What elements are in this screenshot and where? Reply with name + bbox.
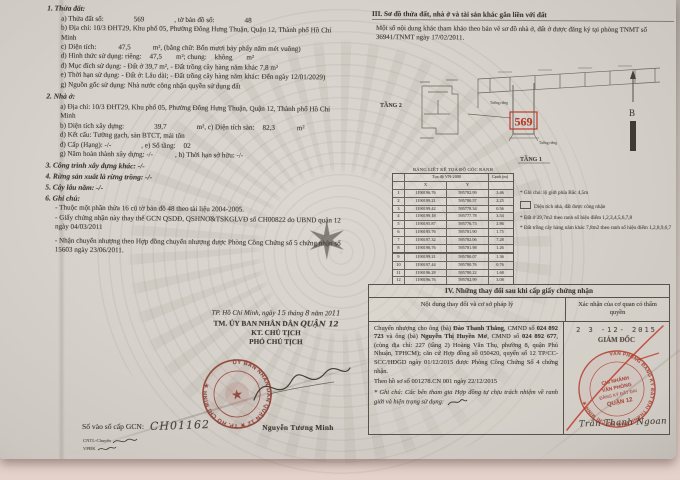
coord-cell: 3.54 [488,213,511,220]
clerk-line: CNTL-Chuyển [83,437,138,445]
coord-cell: 3 [393,206,404,213]
month-handwritten: 8 [305,309,309,317]
coordinate-table: Tọa độ VN-2000 Cạnh (m) X Y 11190196.765… [392,173,514,285]
coord-cell: 2.86 [488,221,511,228]
vn2000-header: Tọa độ VN-2000 [404,174,488,181]
clerk-line: VPĐK [83,445,138,453]
coord-cell: 1190199.21 [404,198,446,205]
coord-cell: 595782.99 [446,190,488,197]
p1-seg: , CMND số [504,325,537,332]
coord-cell: 1.26 [488,245,511,252]
coord-cell: 6 [393,229,404,236]
clerk-initials: CNTL-Chuyển VPĐK [83,437,138,453]
coord-cell: 5 [393,221,404,228]
coord-cell: 595776.73 [446,221,488,228]
issuing-authority-block: TP. Hồ Chí Minh, ngày 15 tháng 8 năm 201… [188,308,364,346]
coord-cell: 595781.98 [446,245,488,252]
coord-cell: 1190196.76 [404,190,446,197]
build-area-value: 39,7 [154,122,167,132]
seal-star-icon: ★ [230,386,244,402]
coord-cell: 595777.78 [446,213,488,220]
clerk1-signature [112,437,138,445]
parcel-number-on-plan: 569 [515,115,533,129]
ownership-term-label: , h) Thời hạn sở hữu: -/- [175,151,243,161]
coord-row: 21190199.21595780.572.25 [393,197,513,205]
section4-heading: IV. Những thay đổi sau khi cấp giấy chứn… [368,284,670,298]
plan-notes: * Ghi chú: lộ giới phía Bắc 4,5m Diện tí… [520,190,672,236]
parcel-number-label: a) Thửa đất số: [61,14,104,24]
note-line: - Nhận chuyển nhượng theo Hợp đồng chuyể… [55,236,343,258]
committee-label: TM. ỦY BAN NHÂN DÂN [213,319,298,329]
dossier-line: Theo hồ sơ số 001278.CN 001 ngày 22/12/2… [374,378,558,387]
registry-number-line: Số vào sổ cấp GCN:CH01162 [82,419,210,432]
clerk2-label: VPĐK [83,446,96,451]
coord-cell: 0.56 [488,206,511,213]
coord-cell: 595778.34 [446,206,488,213]
section-parcel-info: 1. Thửa đất: a) Thửa đất số: 569 , tờ bả… [45,3,346,258]
kt-chairman-line: KT. CHỦ TỊCH [188,328,364,337]
responsibility-note: * Ghi chú: Các bên tham gia Hợp đồng tự … [374,389,558,408]
crop-area-note: * Đất trồng cây hàng năm khác 7,8m2 theo… [520,225,672,233]
place-label: TP. Hồ Chí Minh, ngày [212,310,276,317]
p1-seg: Chuyển nhượng cho ông (bà) [374,325,453,332]
year-built-label: g) Năm hoàn thành xây dựng: -/- [60,150,153,160]
month-label: tháng [288,310,304,317]
recognized-area-note: Diện tích nhà, đất được công nhận [520,201,672,212]
coord-cell: 2.25 [488,198,511,205]
day-handwritten: 15 [277,309,286,317]
year-label: năm 20 [311,310,332,317]
coord-row: 111190196.28595780.221.68 [393,269,513,277]
clerk1-label: CNTL-Chuyển [83,438,111,443]
edge-col-spacer [488,182,511,189]
coord-cell: 2 [393,198,404,205]
coord-cell: 1.68 [488,270,511,277]
parcel-site-plan: 569 TẦNG 2 TẦNG 1 Tường riêng Tường riên… [350,56,672,168]
grade-label: đ) Cấp (Hạng): -/- [60,140,112,150]
coord-row: 41190199.18595777.783.54 [393,212,513,220]
coord-row: 31190199.42595778.340.56 [393,205,513,213]
house-year-line: g) Năm hoàn thành xây dựng: -/- , h) Thờ… [60,150,344,162]
deputy-chairman-line: PHÓ CHỦ TỊCH [188,337,364,346]
coord-cell: 595781.90 [446,229,488,236]
coord-cell: 1190199.18 [404,213,446,220]
coordinate-table-group-header: Tọa độ VN-2000 Cạnh (m) [393,174,513,181]
recognized-area-text: Diện tích nhà, đất được công nhận [534,204,605,210]
year-handwritten: 11 [332,309,341,317]
coord-cell: 7 [393,237,404,244]
coord-cell: 1.75 [488,229,511,236]
clerk2-signature [97,445,117,453]
coord-cell: 1190196.76 [404,245,446,252]
registry-label: Số vào sổ cấp GCN: [82,422,144,431]
section4-column-headers: Nội dung thay đổi và cơ sở pháp lý Xác n… [368,298,670,322]
coord-cell: 595780.57 [446,198,488,205]
coord-cell: 9 [393,254,404,261]
map-sheet-label: , tờ bản đồ số: [174,16,214,26]
coord-cell: 1 [393,190,404,197]
north-label: B [629,108,635,118]
use-form-unit2: m² [246,54,254,64]
transfer-content: Chuyển nhượng cho ông (bà) Đào Thanh Thắ… [369,322,564,434]
content-column-header: Nội dung thay đổi và cơ sở pháp lý [369,298,566,321]
coord-cell: 7.28 [488,237,511,244]
coord-cell: 595782.06 [446,237,488,244]
area-value: 47,5 [118,43,131,53]
date-place-line: TP. Hồ Chí Minh, ngày 15 tháng 8 năm 201… [188,308,364,317]
confirmation-cell: 2 3 -12- 2015 GIÁM ĐỐC VĂN PHÒNG ĐĂNG KÝ… [564,322,669,434]
coord-cell: 595780.76 [446,262,488,269]
road-setback-note: * Ghi chú: lộ giới phía Bắc 4,5m [520,190,672,198]
coord-cell: 11 [393,270,404,277]
coord-row: 91190199.21595780.071.36 [393,253,513,261]
coord-row: 61190195.76595781.901.75 [393,228,513,236]
coord-cell: 3.46 [488,190,511,197]
registry-value-handwritten: CH01162 [150,418,210,433]
p1-seg: , CMND số [487,333,522,340]
legend-swatch [520,201,531,209]
floor1-label: TẦNG 1 [520,155,542,163]
wall-label-left: Tường riêng [490,101,508,105]
coord-cell: 1190196.28 [404,270,446,277]
use-form-unit: m²; chung: [176,53,207,63]
floor-area-label: m², c) Diện tích sàn: [197,123,255,133]
scanned-certificate-photo: ✶ 1. Thửa đất: a) Thửa đất số: 569 , tờ … [0,0,680,480]
confirmation-column-header: Xác nhận của cơ quan có thẩm quyền [566,298,669,321]
coord-row: 11190196.76595782.993.46 [393,189,513,197]
coordinate-table-title: BẢNG LIỆT KÊ TỌA ĐỘ GÓC RANH [392,167,514,172]
use-form-private: 47,5 [150,53,163,63]
coord-cell: 1190195.76 [404,229,446,236]
coord-cell: 595780.22 [446,270,488,277]
section3-map-heading: III. Sơ đồ thửa đất, nhà ở và tài sản kh… [372,10,674,22]
committee-line: TM. ỦY BAN NHÂN DÂN QUẬN 12 [188,318,364,328]
coord-cell: 8 [393,245,404,252]
transferee1-name: Đào Thanh Thắng [453,325,504,332]
y-col-header: Y [446,182,488,189]
coord-cell: 4 [393,213,404,220]
floor2-label: TẦNG 2 [380,101,402,109]
chairman-signature [250,360,354,412]
red-pen-stroke [551,322,669,434]
transfer-paragraph: Chuyển nhượng cho ông (bà) Đào Thanh Thắ… [374,325,558,376]
x-col-header: X [404,182,446,189]
parcel-number-value: 569 [134,15,145,25]
coordinate-table-block: BẢNG LIỆT KÊ TỌA ĐỘ GÓC RANH Tọa độ VN-2… [392,167,514,285]
scale-bar [630,121,636,151]
coord-cell: 10 [393,262,404,269]
coord-cell: 1190197.44 [404,262,446,269]
storeys-value: 02 [183,141,190,150]
p1-seg: và ông (bà) [384,333,421,340]
coord-row: 101190197.44595780.760.76 [393,261,513,269]
map-sheet-value: 48 [244,16,251,25]
use-form-shared: không [215,54,233,64]
certificate-page: ✶ 1. Thửa đất: a) Thửa đất số: 569 , tờ … [0,0,676,459]
coord-cell: 1190195.87 [404,221,446,228]
coordinate-table-subheader: X Y [393,181,513,189]
initial-signature [446,397,468,407]
coord-cell: 1190199.21 [404,254,446,261]
coord-cell: 0.76 [488,262,511,269]
wall-label-right: Tường riêng [539,141,557,145]
coordinate-rows: 11190196.76595782.993.4621190199.2159578… [393,189,513,285]
floor-area-value: 82,3 [262,123,275,133]
coord-row: 51190195.87595776.732.86 [393,220,513,228]
section4-changes-table: IV. Những thay đổi sau khi cấp giấy chứn… [368,284,670,435]
section4-body: Chuyển nhượng cho ông (bà) Đào Thanh Thắ… [368,322,670,435]
chairman-name: Nguyễn Tương Minh [218,423,378,432]
area-label: c) Diện tích: [61,43,97,53]
coord-cell: 1190197.32 [404,237,446,244]
coord-row: 71190197.32595782.067.28 [393,236,513,244]
coord-row: 81190196.76595781.981.26 [393,244,513,253]
residential-area-note: * Đất ở 39,7m2 theo ranh số hiệu điểm 1,… [520,215,672,223]
corner-cell [393,174,404,181]
section3-map-note: Một số nội dung khác tham khảo theo bản … [376,24,666,45]
transferee2-name: Nguyễn Thị Huyền Mơ [421,333,488,340]
district-handwritten: QUẬN 12 [300,319,338,328]
floor-area-unit: m² [297,124,305,134]
coord-cell: 1190199.42 [404,206,446,213]
point-col-header [393,182,404,189]
note-line: - Giấy chứng nhận này thay thế GCN QSDĐ,… [55,213,343,235]
storeys-label: , e) Số tầng: [141,141,175,151]
coord-cell: 595780.07 [446,254,488,261]
edge-header: Cạnh (m) [488,174,511,181]
coord-cell: 1.36 [488,254,511,261]
